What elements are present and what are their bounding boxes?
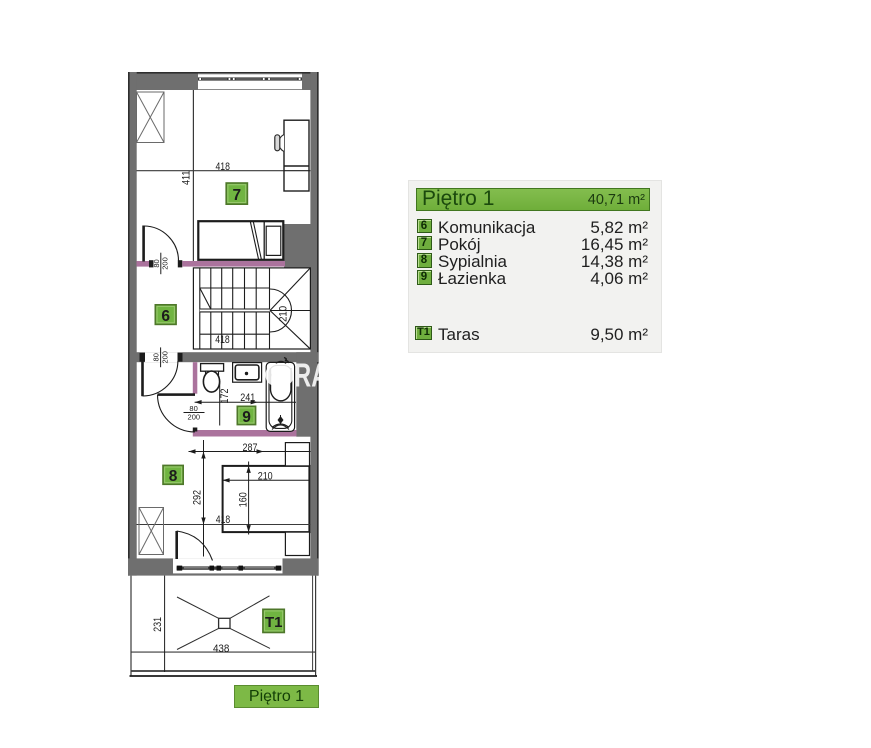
svg-text:292: 292 <box>192 490 204 505</box>
svg-text:418: 418 <box>216 514 231 526</box>
svg-text:8: 8 <box>169 468 178 485</box>
svg-text:200: 200 <box>161 257 170 270</box>
svg-text:RA: RA <box>294 358 328 395</box>
svg-text:172: 172 <box>219 389 231 404</box>
svg-text:210: 210 <box>277 306 289 322</box>
svg-text:210: 210 <box>258 470 273 482</box>
svg-text:80: 80 <box>152 353 161 361</box>
svg-text:O: O <box>264 356 296 393</box>
svg-text:200: 200 <box>161 351 170 364</box>
svg-text:80: 80 <box>152 259 161 267</box>
svg-text:231: 231 <box>152 617 164 632</box>
svg-text:6: 6 <box>161 308 170 325</box>
svg-text:287: 287 <box>243 442 258 454</box>
svg-text:418: 418 <box>215 161 230 173</box>
svg-text:7: 7 <box>232 187 241 204</box>
svg-text:200: 200 <box>188 413 201 422</box>
svg-text:T1: T1 <box>265 614 283 631</box>
svg-text:241: 241 <box>240 392 255 404</box>
svg-text:9: 9 <box>242 409 251 426</box>
svg-text:418: 418 <box>215 334 230 346</box>
svg-text:411: 411 <box>181 171 193 186</box>
svg-text:160: 160 <box>238 492 250 507</box>
svg-text:438: 438 <box>213 643 230 655</box>
